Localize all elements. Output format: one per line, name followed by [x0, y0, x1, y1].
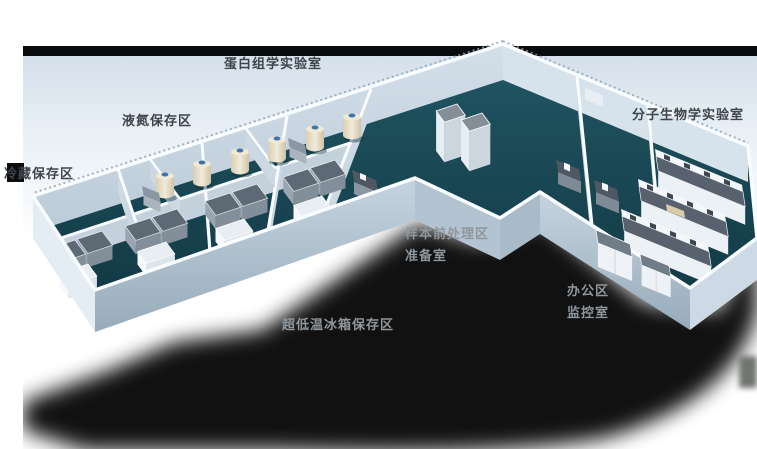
area-label-cold-storage: 冷藏保存区: [4, 168, 74, 182]
area-label-molecular-biology: 分子生物学实验室: [632, 109, 744, 123]
area-label-prep-room: 准备室: [405, 250, 447, 264]
top-band: [23, 46, 757, 56]
area-label-sample-pretreatment: 样本前处理区: [405, 228, 489, 242]
lab-floorplan-illustration: 蛋白组学实验室液氮保存区冷藏保存区分子生物学实验室样本前处理区准备室办公区监控室…: [0, 0, 757, 449]
area-label-monitor-room: 监控室: [567, 307, 609, 321]
proteomics-room-equipment: [436, 104, 490, 171]
area-label-ln2-storage: 液氮保存区: [122, 115, 192, 129]
area-label-proteomics: 蛋白组学实验室: [224, 58, 322, 72]
area-label-ult-freezer-storage: 超低温冰箱保存区: [282, 319, 394, 333]
area-label-office: 办公区: [567, 285, 609, 299]
floor-reflection: [739, 356, 757, 388]
floorplan-scene: [0, 0, 757, 449]
